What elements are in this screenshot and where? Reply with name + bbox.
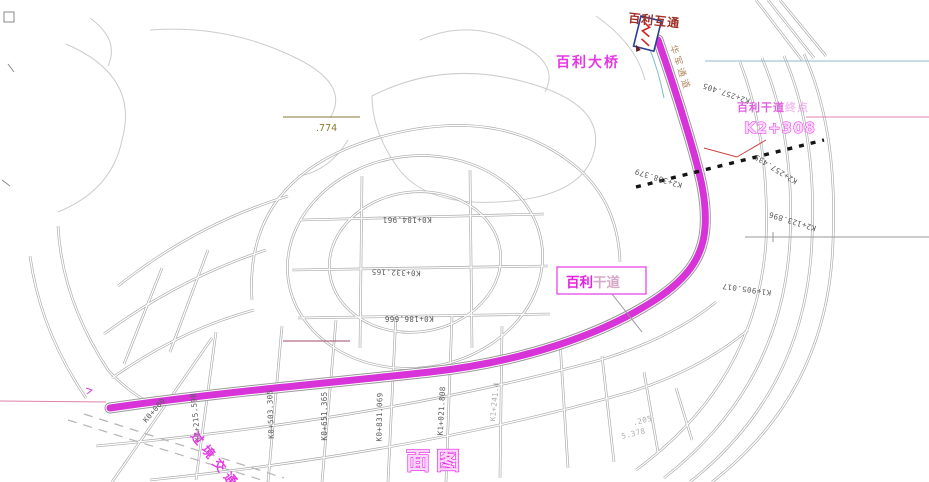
bridge-name-label: 百利大桥 [556,54,620,71]
dim-774-label: .774 [316,123,337,134]
station-label: K1+905.017 [722,282,772,298]
route-end-prefix: 百利干道 [737,100,785,114]
station-fragment: .205 [632,414,653,427]
station-label: K2+257.435 [752,152,798,186]
station-label: K0+184.961 [382,215,431,224]
station-label: K0+186.666 [384,314,433,323]
terrain-contours [58,16,645,212]
right-dim-line [745,232,929,242]
route-name-light: 干道 [593,274,621,291]
interchange-name-label: 百利互通 [628,10,681,30]
pink-line-left [0,401,106,402]
route-end-suffix: 终点 [785,100,809,114]
station-label: K0+332.165 [371,267,420,278]
small-magenta-mark [86,388,92,394]
station-label: K2+123.896 [767,210,817,233]
station-label: K1+021.808 [436,386,448,436]
route-name-label: 百利干道 [566,274,621,291]
station-label: K0+503.305 [265,389,276,438]
route-end-station-label: K2+308 [744,119,816,137]
plan-title: 面图 [406,447,466,475]
station-fragment: 5.378 [620,426,646,441]
station-label: K0+831.069 [375,392,385,441]
station-label: K0+651.365 [320,391,329,440]
route-name-bold: 百利 [566,274,593,291]
route-end-label: 百利干道终点 [737,100,809,114]
road-plan-drawing: K0+000 K0+215.598 K0+503.305 K0+651.365 … [0,0,929,482]
edge-marks [2,12,14,186]
through-traffic-road [68,414,284,482]
